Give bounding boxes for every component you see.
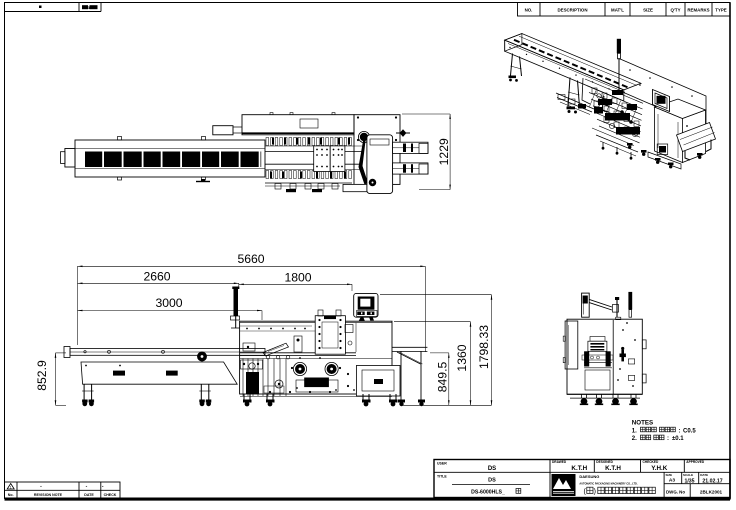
svg-text:NOTES: NOTES [632, 420, 653, 427]
svg-text:2BLK2001: 2BLK2001 [700, 490, 723, 495]
svg-text::: : [667, 436, 669, 442]
svg-text:SCALE: SCALE [683, 473, 693, 477]
svg-text:DATE: DATE [700, 473, 708, 477]
svg-text:1800: 1800 [284, 271, 311, 285]
svg-text:): ) [594, 489, 596, 496]
svg-text:1/35: 1/35 [684, 478, 694, 484]
svg-text:DESCRIPTION: DESCRIPTION [557, 8, 587, 13]
svg-text:21.02.17: 21.02.17 [702, 478, 722, 484]
svg-text:USER: USER [437, 462, 447, 466]
svg-text:No.: No. [8, 493, 14, 497]
svg-text:APPROVED: APPROVED [686, 460, 705, 464]
svg-text:2.: 2. [632, 436, 637, 442]
svg-text:CHECK: CHECK [104, 493, 117, 497]
svg-text:C0.5: C0.5 [683, 428, 696, 434]
svg-text:DATE: DATE [84, 493, 94, 497]
svg-text:5660: 5660 [237, 252, 264, 266]
svg-text:A3: A3 [669, 478, 675, 484]
svg-text::: : [679, 428, 681, 434]
svg-text:NO.: NO. [525, 8, 533, 13]
svg-text:CHECKED: CHECKED [643, 460, 659, 464]
svg-text:DS-6000HLS_: DS-6000HLS_ [471, 490, 505, 496]
svg-text:1: 1 [10, 485, 12, 489]
svg-text:DS: DS [488, 478, 496, 484]
svg-text:TITLE: TITLE [437, 474, 447, 478]
svg-text:852.9: 852.9 [35, 360, 49, 391]
svg-text:849.5: 849.5 [436, 362, 450, 393]
svg-text:1360: 1360 [455, 344, 469, 371]
svg-text:K.T.H: K.T.H [605, 465, 621, 472]
svg-text:AUTOMATIC PACKAGING MACHINERY: AUTOMATIC PACKAGING MACHINERY CO., LTD. [579, 482, 637, 485]
svg-text:DS: DS [488, 466, 496, 472]
svg-text:REMARKS: REMARKS [687, 8, 709, 13]
svg-text:K.T.H: K.T.H [571, 465, 587, 472]
svg-text:SIZE: SIZE [643, 8, 653, 13]
svg-text:±0.1: ±0.1 [672, 436, 684, 442]
svg-text:1.: 1. [632, 428, 637, 434]
svg-text:2660: 2660 [143, 270, 170, 284]
svg-text:Q'TY: Q'TY [670, 8, 680, 13]
svg-text:1229: 1229 [437, 138, 451, 165]
svg-text:MAT'L: MAT'L [611, 8, 624, 13]
svg-text:DAESUNG: DAESUNG [579, 474, 599, 479]
svg-text:DESIGNED: DESIGNED [596, 460, 613, 464]
svg-text:SIZE: SIZE [666, 473, 673, 477]
svg-text:Y.H.K: Y.H.K [651, 465, 668, 472]
svg-text:1798.33: 1798.33 [477, 325, 491, 369]
svg-text:DRAWED: DRAWED [552, 460, 567, 464]
svg-text:3000: 3000 [155, 296, 182, 310]
svg-text:DWG. No: DWG. No [666, 489, 685, 494]
svg-text:TYPE: TYPE [715, 8, 727, 13]
svg-text:REVISION NOTE: REVISION NOTE [34, 493, 63, 497]
